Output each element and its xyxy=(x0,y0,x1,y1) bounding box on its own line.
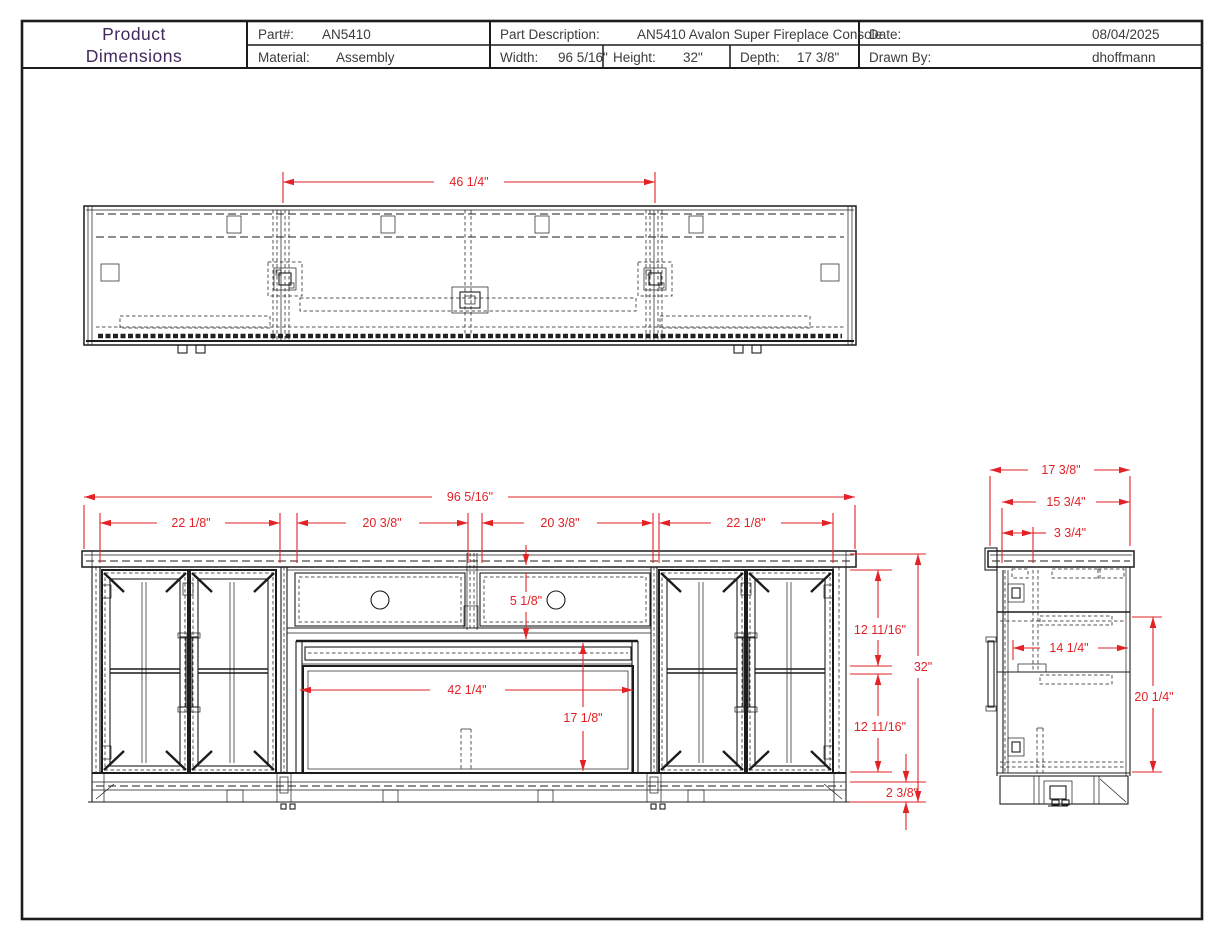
dim-label-shelf-depth: 14 1/4" xyxy=(1049,641,1088,655)
drawn-by-value: dhoffmann xyxy=(1092,50,1156,65)
width-value: 96 5/16" xyxy=(558,50,608,65)
right-cabinet-doors xyxy=(659,570,833,773)
product-dimensions-drawing: Product Dimensions Part#: AN5410 Materia… xyxy=(0,0,1212,930)
center-support-bracket xyxy=(452,287,488,313)
part-description-value: AN5410 Avalon Super Fireplace Console xyxy=(637,27,882,42)
dim-label-46-1-4: 46 1/4" xyxy=(449,175,488,189)
height-value: 32" xyxy=(683,50,703,65)
dim-label-right-door-width: 22 1/8" xyxy=(726,516,765,530)
side-base xyxy=(1000,776,1128,806)
dim-label-opening-width: 42 1/4" xyxy=(447,683,486,697)
right-wall-bracket xyxy=(821,264,839,281)
side-view-dimensions: 17 3/8" 15 3/4" 3 3/4" 14 1/4" 20 1/4" xyxy=(990,463,1174,772)
dim-label-overall-height: 32" xyxy=(914,660,932,674)
side-hinges xyxy=(1008,584,1024,756)
part-number-value: AN5410 xyxy=(322,27,371,42)
drawing-sheet: Product Dimensions Part#: AN5410 Materia… xyxy=(0,0,1212,930)
date-label: Date: xyxy=(869,27,901,42)
dim-label-left-door-width: 22 1/8" xyxy=(171,516,210,530)
right-drawer-knob xyxy=(547,591,565,609)
top-view: 46 1/4" xyxy=(84,172,856,353)
top-view-feet xyxy=(178,345,761,353)
dim-label-left-drawer-width: 20 3/8" xyxy=(362,516,401,530)
field-date: Date: 08/04/2025 xyxy=(869,27,1160,42)
sheet-title-line1: Product xyxy=(102,24,166,44)
left-drawer-knob xyxy=(371,591,389,609)
date-value: 08/04/2025 xyxy=(1092,27,1160,42)
width-label: Width: xyxy=(500,50,538,65)
front-base-feet xyxy=(92,773,846,809)
front-view: 96 5/16" 22 1/8" 20 3/8" 20 3/8" 22 1/8"… xyxy=(82,490,932,830)
drawn-by-label: Drawn By: xyxy=(869,50,931,65)
dim-label-side-opening-height: 20 1/4" xyxy=(1134,690,1173,704)
dim-label-upper-section-height: 12 11/16" xyxy=(854,623,906,637)
dim-label-drawer-height: 5 1/8" xyxy=(510,594,542,608)
dim-label-opening-height: 17 1/8" xyxy=(563,711,602,725)
field-width: Width: 96 5/16" xyxy=(500,50,608,65)
field-material: Material: Assembly xyxy=(258,50,395,65)
title-block: Product Dimensions Part#: AN5410 Materia… xyxy=(22,21,1202,68)
height-label: Height: xyxy=(613,50,656,65)
side-view: 17 3/8" 15 3/4" 3 3/4" 14 1/4" 20 1/4" xyxy=(985,463,1174,806)
material-label: Material: xyxy=(258,50,310,65)
front-top-panel xyxy=(82,551,856,567)
part-number-label: Part#: xyxy=(258,27,294,42)
right-divider-hinge xyxy=(638,262,672,296)
dim-top-center-section: 46 1/4" xyxy=(283,172,655,203)
field-depth: Depth: 17 3/8" xyxy=(740,50,840,65)
fireplace-opening xyxy=(296,641,638,773)
field-part-description: Part Description: AN5410 Avalon Super Fi… xyxy=(500,27,882,42)
sheet-title-line2: Dimensions xyxy=(86,46,182,66)
dim-label-overall-depth: 17 3/8" xyxy=(1041,463,1080,477)
field-height: Height: 32" xyxy=(613,50,703,65)
material-value: Assembly xyxy=(336,50,395,65)
field-drawn-by: Drawn By: dhoffmann xyxy=(869,50,1156,65)
left-wall-bracket xyxy=(101,264,119,281)
dim-label-right-drawer-width: 20 3/8" xyxy=(540,516,579,530)
left-cabinet-doors xyxy=(102,570,276,773)
dim-label-base-height: 2 3/8" xyxy=(886,786,918,800)
field-part-number: Part#: AN5410 xyxy=(258,27,371,42)
dim-label-top-offset: 3 3/4" xyxy=(1054,526,1086,540)
part-description-label: Part Description: xyxy=(500,27,600,42)
depth-label: Depth: xyxy=(740,50,780,65)
depth-value: 17 3/8" xyxy=(797,50,840,65)
dim-label-interior-depth: 15 3/4" xyxy=(1046,495,1085,509)
center-drawers xyxy=(287,553,651,633)
dim-label-lower-section-height: 12 11/16" xyxy=(854,720,906,734)
side-door-handle xyxy=(986,637,996,711)
dim-label-overall-width: 96 5/16" xyxy=(447,490,493,504)
